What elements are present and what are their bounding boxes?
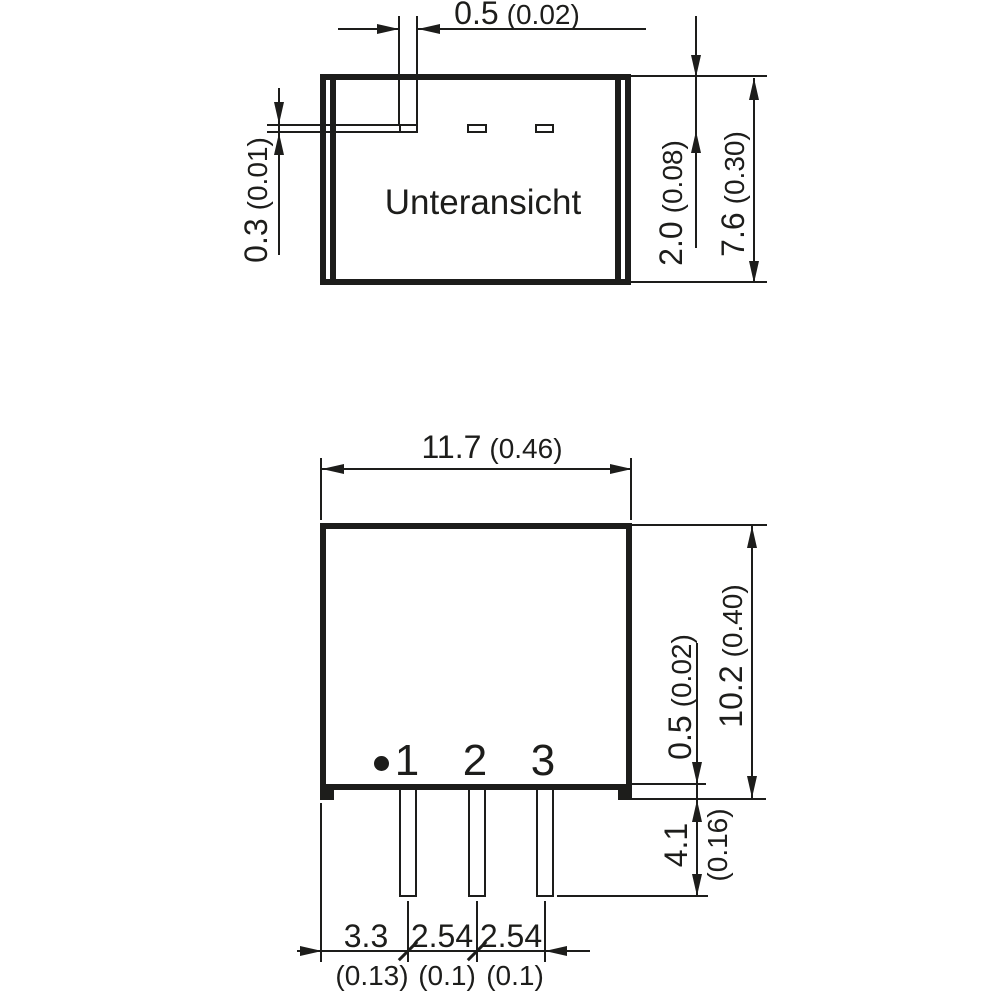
- pin-2-label: 2: [463, 739, 487, 783]
- dim-body-width: 11.7(0.46): [421, 431, 562, 463]
- arrowhead-icon: [322, 464, 344, 474]
- pin-3-lead: [536, 786, 554, 897]
- dim-value-mm: 4.1: [655, 808, 697, 881]
- right-standoff-foot: [618, 788, 632, 800]
- dim-pitch-1-2-inch: (0.1): [418, 962, 476, 990]
- arrowhead-icon: [747, 776, 757, 798]
- dim-value-mm: 10.2: [713, 665, 749, 727]
- left-standoff-foot: [320, 788, 334, 800]
- dim-standoff: 0.5(0.02): [664, 634, 696, 760]
- dim-pin1-offset-mm: 3.3: [344, 920, 388, 952]
- dim-value-inch: (0.40): [717, 584, 748, 657]
- arrowhead-icon: [300, 946, 322, 956]
- pin-2-lead: [468, 786, 486, 897]
- dim-value-inch: (0.1): [418, 960, 476, 991]
- dimension-line: [751, 526, 753, 799]
- pin1-marker-dot: [374, 756, 389, 771]
- dim-pitch-2-3-mm: 2.54: [480, 920, 542, 952]
- dim-value-inch: (0.46): [489, 433, 562, 464]
- pin-1-lead: [399, 786, 417, 897]
- dim-value-inch: (0.13): [335, 960, 408, 991]
- dim-value-mm: 2.54: [411, 918, 473, 954]
- dim-pin-length: 4.1(0.16): [655, 808, 739, 881]
- pin-1-label: 1: [395, 739, 419, 783]
- dim-value-mm: 2.54: [480, 918, 542, 954]
- front-view: 1 2 3 11.7(0.46) 10.2(0.40) 0.5(0.02): [0, 0, 1000, 1000]
- dim-pitch-1-2-mm: 2.54: [411, 920, 473, 952]
- dim-value-inch: (0.16): [697, 808, 739, 881]
- dim-value-inch: (0.02): [666, 634, 697, 707]
- dim-body-height: 10.2(0.40): [715, 584, 747, 727]
- arrowhead-icon: [747, 526, 757, 548]
- dim-value-mm: 0.5: [662, 715, 698, 759]
- pin-3-label: 3: [531, 739, 555, 783]
- package-dimension-drawing: Unteransicht 0.5(0.02) 0.3(0.01) 2.0(0.0…: [0, 0, 1000, 1000]
- extension-line: [557, 895, 708, 897]
- arrowhead-icon: [545, 946, 567, 956]
- dim-pitch-2-3-inch: (0.1): [486, 962, 544, 990]
- dim-value-inch: (0.1): [486, 960, 544, 991]
- dim-value-mm: 11.7: [421, 429, 481, 465]
- extension-line: [320, 803, 322, 962]
- dimension-line: [322, 468, 632, 470]
- dim-pin1-offset-inch: (0.13): [335, 962, 408, 990]
- dim-value-mm: 3.3: [344, 918, 388, 954]
- arrowhead-icon: [610, 464, 632, 474]
- arrowhead-icon: [692, 762, 702, 784]
